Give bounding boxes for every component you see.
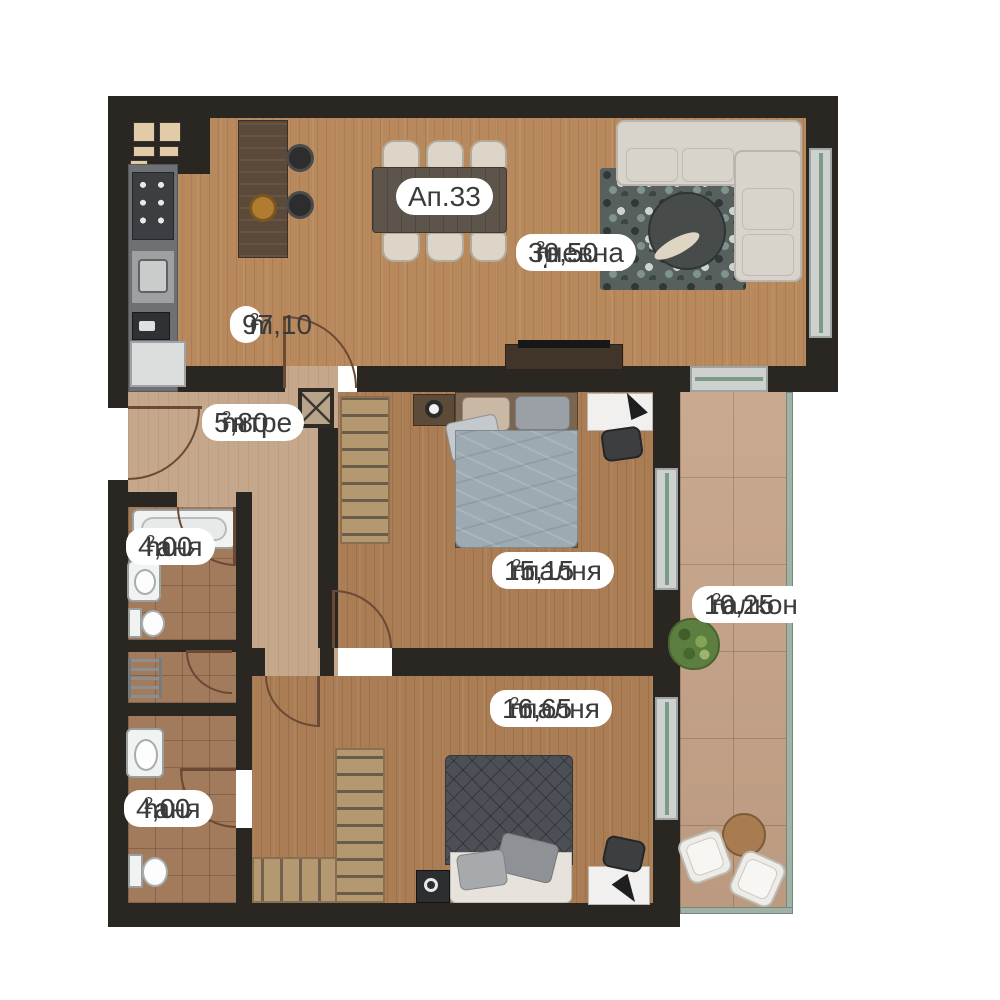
balcony-railing-right bbox=[786, 392, 793, 913]
room-area: 5,80 m2 bbox=[204, 406, 232, 439]
room-area: 15,15 m2 bbox=[494, 554, 522, 587]
dining-chair bbox=[382, 232, 420, 262]
wall-living-south-right bbox=[768, 366, 838, 392]
window-glass bbox=[665, 702, 669, 815]
wall-left-upper bbox=[108, 96, 128, 408]
balcony-table bbox=[722, 813, 766, 857]
bathroom2-toilet bbox=[128, 854, 143, 888]
balcony-door bbox=[690, 366, 768, 392]
balcony-railing-bottom bbox=[680, 907, 793, 914]
window-glass bbox=[819, 153, 823, 333]
sofa-cushion bbox=[682, 148, 734, 182]
window-bedroom-2 bbox=[655, 697, 678, 820]
fridge bbox=[130, 341, 186, 387]
wardrobe-bedroom-1 bbox=[340, 396, 390, 544]
kitchen-cabinet bbox=[159, 146, 179, 157]
wall-top bbox=[108, 96, 838, 118]
wc-lobby-door-leaf bbox=[186, 650, 232, 653]
bedroom1-door-leaf bbox=[332, 590, 335, 648]
wall-left-lower bbox=[108, 480, 128, 927]
apartment-number: Ап.33 bbox=[398, 180, 491, 213]
chair-pad bbox=[736, 857, 780, 901]
sink-basin bbox=[138, 259, 168, 293]
plant bbox=[668, 618, 720, 670]
total-area: 97,10 m2 bbox=[232, 308, 260, 341]
kitchen-sink bbox=[131, 250, 175, 304]
kitchen-island bbox=[238, 120, 288, 258]
bathroom1-toilet-bowl bbox=[141, 610, 165, 637]
tv bbox=[518, 340, 610, 348]
sink-bowl bbox=[134, 739, 158, 771]
bed-1-pillow bbox=[515, 396, 570, 430]
lamp bbox=[425, 400, 443, 418]
appliance-door bbox=[139, 321, 155, 331]
bathroom1-door-leaf bbox=[233, 507, 236, 566]
bathroom2-toilet-bowl bbox=[142, 857, 168, 887]
sofa-cushion bbox=[742, 234, 794, 276]
bathroom2-sink bbox=[126, 728, 164, 778]
bedroom2-door-leaf bbox=[317, 676, 320, 727]
kitchen-cabinet bbox=[133, 146, 155, 157]
dining-chair bbox=[470, 232, 507, 262]
dining-chair bbox=[382, 140, 420, 170]
kitchen-appliance bbox=[132, 312, 170, 340]
window-glass bbox=[665, 473, 669, 585]
floor-plan: Ап.33 Дневна 30,50 m2 97,10 m2 Антре 5,8… bbox=[0, 0, 1000, 1000]
window-bedroom-1 bbox=[655, 468, 678, 590]
wall-bedroom-divider-c bbox=[392, 648, 680, 676]
bed-2-pillow bbox=[456, 849, 509, 891]
kitchen-cabinet bbox=[159, 122, 181, 142]
dining-chair bbox=[426, 140, 464, 170]
wall-bedroom-divider-a bbox=[252, 648, 265, 676]
bed-1-blanket bbox=[455, 430, 578, 548]
room-area: 16,65 m2 bbox=[492, 692, 520, 725]
wall-bath-right-lower bbox=[236, 828, 252, 903]
wall-bedroom-divider-b bbox=[320, 648, 334, 676]
sofa-cushion bbox=[626, 148, 678, 182]
dining-chair bbox=[426, 232, 464, 262]
kitchen-cabinet bbox=[133, 122, 155, 142]
duct-shaft bbox=[298, 388, 334, 428]
cooktop bbox=[132, 172, 174, 240]
desk-chair-1 bbox=[600, 425, 644, 462]
speaker bbox=[416, 870, 450, 903]
room-area: 4,00 m2 bbox=[126, 792, 154, 825]
wall-bottom bbox=[108, 903, 680, 927]
speaker-ring bbox=[424, 878, 438, 892]
closet-bedroom-2-shoes bbox=[252, 857, 337, 903]
bar-stool bbox=[286, 144, 314, 172]
wall-bath-right-upper bbox=[236, 492, 252, 770]
bar-stool bbox=[286, 191, 314, 219]
room-area: 4,00 m2 bbox=[128, 530, 156, 563]
fruit-bowl bbox=[249, 194, 277, 222]
wall-bath2-top bbox=[128, 703, 252, 716]
entry-door-leaf bbox=[128, 406, 202, 409]
towel-radiator bbox=[128, 658, 162, 698]
dining-chair bbox=[470, 140, 507, 170]
room-area: 10,25 m2 bbox=[694, 588, 722, 621]
wall-bath1-top bbox=[128, 492, 177, 507]
sofa-cushion bbox=[742, 188, 794, 230]
sink-bowl bbox=[134, 569, 156, 595]
window-living-room bbox=[809, 148, 832, 338]
bathroom1-toilet bbox=[128, 608, 142, 638]
door-glass bbox=[695, 377, 763, 381]
chair-pad bbox=[684, 836, 725, 878]
room-area: 30,50 m2 bbox=[518, 236, 546, 269]
bathroom2-door-leaf bbox=[180, 768, 236, 771]
bathroom1-sink bbox=[127, 560, 161, 602]
closet-bedroom-2-vertical bbox=[335, 748, 385, 903]
